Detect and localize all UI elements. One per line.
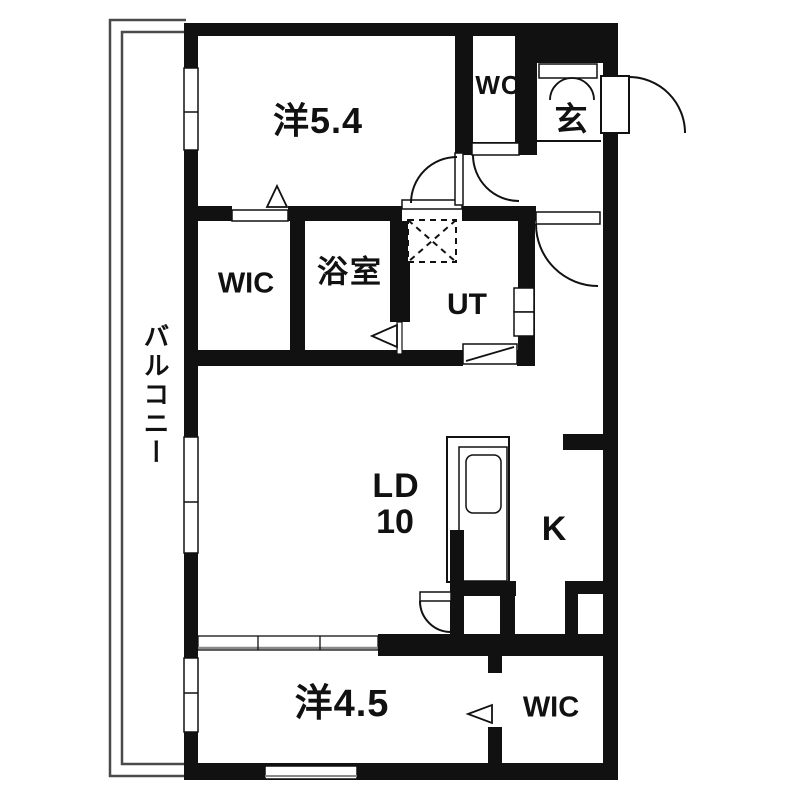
utility-door [463, 344, 517, 364]
label-bedroom-top: 洋5.4 [273, 103, 363, 139]
wall-kitchen-bottom-1 [464, 581, 516, 596]
label-wc: WC [475, 72, 520, 98]
wall-wic1-right [290, 221, 305, 352]
kitchen-sink [466, 455, 501, 513]
wall-kitchen-bottom-2 [565, 581, 603, 594]
wall-right [603, 23, 618, 780]
label-living-size: 10 [376, 505, 414, 539]
label-entrance: 玄 [555, 103, 588, 136]
label-living-dining: LD [372, 469, 419, 503]
wall-kitchen-bar-1 [500, 596, 515, 638]
window-bedroom-top [184, 68, 198, 150]
floor-plan-drawing [0, 0, 798, 800]
window-bedroom-bottom [184, 658, 198, 732]
label-bedroom-bottom: 洋4.5 [295, 685, 390, 723]
wall-mid-divider-2 [288, 206, 402, 221]
label-utility: UT [447, 290, 487, 320]
label-kitchen: K [542, 512, 567, 546]
plan-background [0, 0, 798, 800]
wall-bottom [184, 763, 618, 780]
window-bottom [265, 766, 357, 779]
wall-mid-bottom-right [517, 350, 535, 366]
utility-vanity [514, 288, 534, 336]
floor-plan: 洋5.4 WC 玄 WIC 浴室 UT LD 10 K 洋4.5 WIC バルコ… [0, 0, 798, 800]
washer-pan-symbol [408, 220, 456, 262]
wall-kitchen-left-overlay [450, 530, 464, 651]
wall-wic2-left-bottom [488, 727, 502, 763]
wall-bath-right [390, 221, 410, 322]
wall-ut-right [518, 206, 535, 362]
wall-kitchen-stub [563, 434, 603, 450]
sliding-partition-ld [198, 636, 378, 650]
wall-wic2-left-top [488, 651, 502, 673]
window-living [184, 437, 198, 553]
label-wic-bottom: WIC [523, 694, 579, 723]
label-bathroom: 浴室 [317, 257, 383, 288]
wall-mid-divider-1 [184, 206, 232, 221]
label-wic-middle: WIC [218, 270, 274, 299]
wall-wc-left [455, 36, 473, 142]
label-balcony: バルコニー [142, 323, 168, 468]
wall-mid-bottom-left [184, 350, 463, 366]
wall-ld-bottom-stub [184, 634, 198, 656]
